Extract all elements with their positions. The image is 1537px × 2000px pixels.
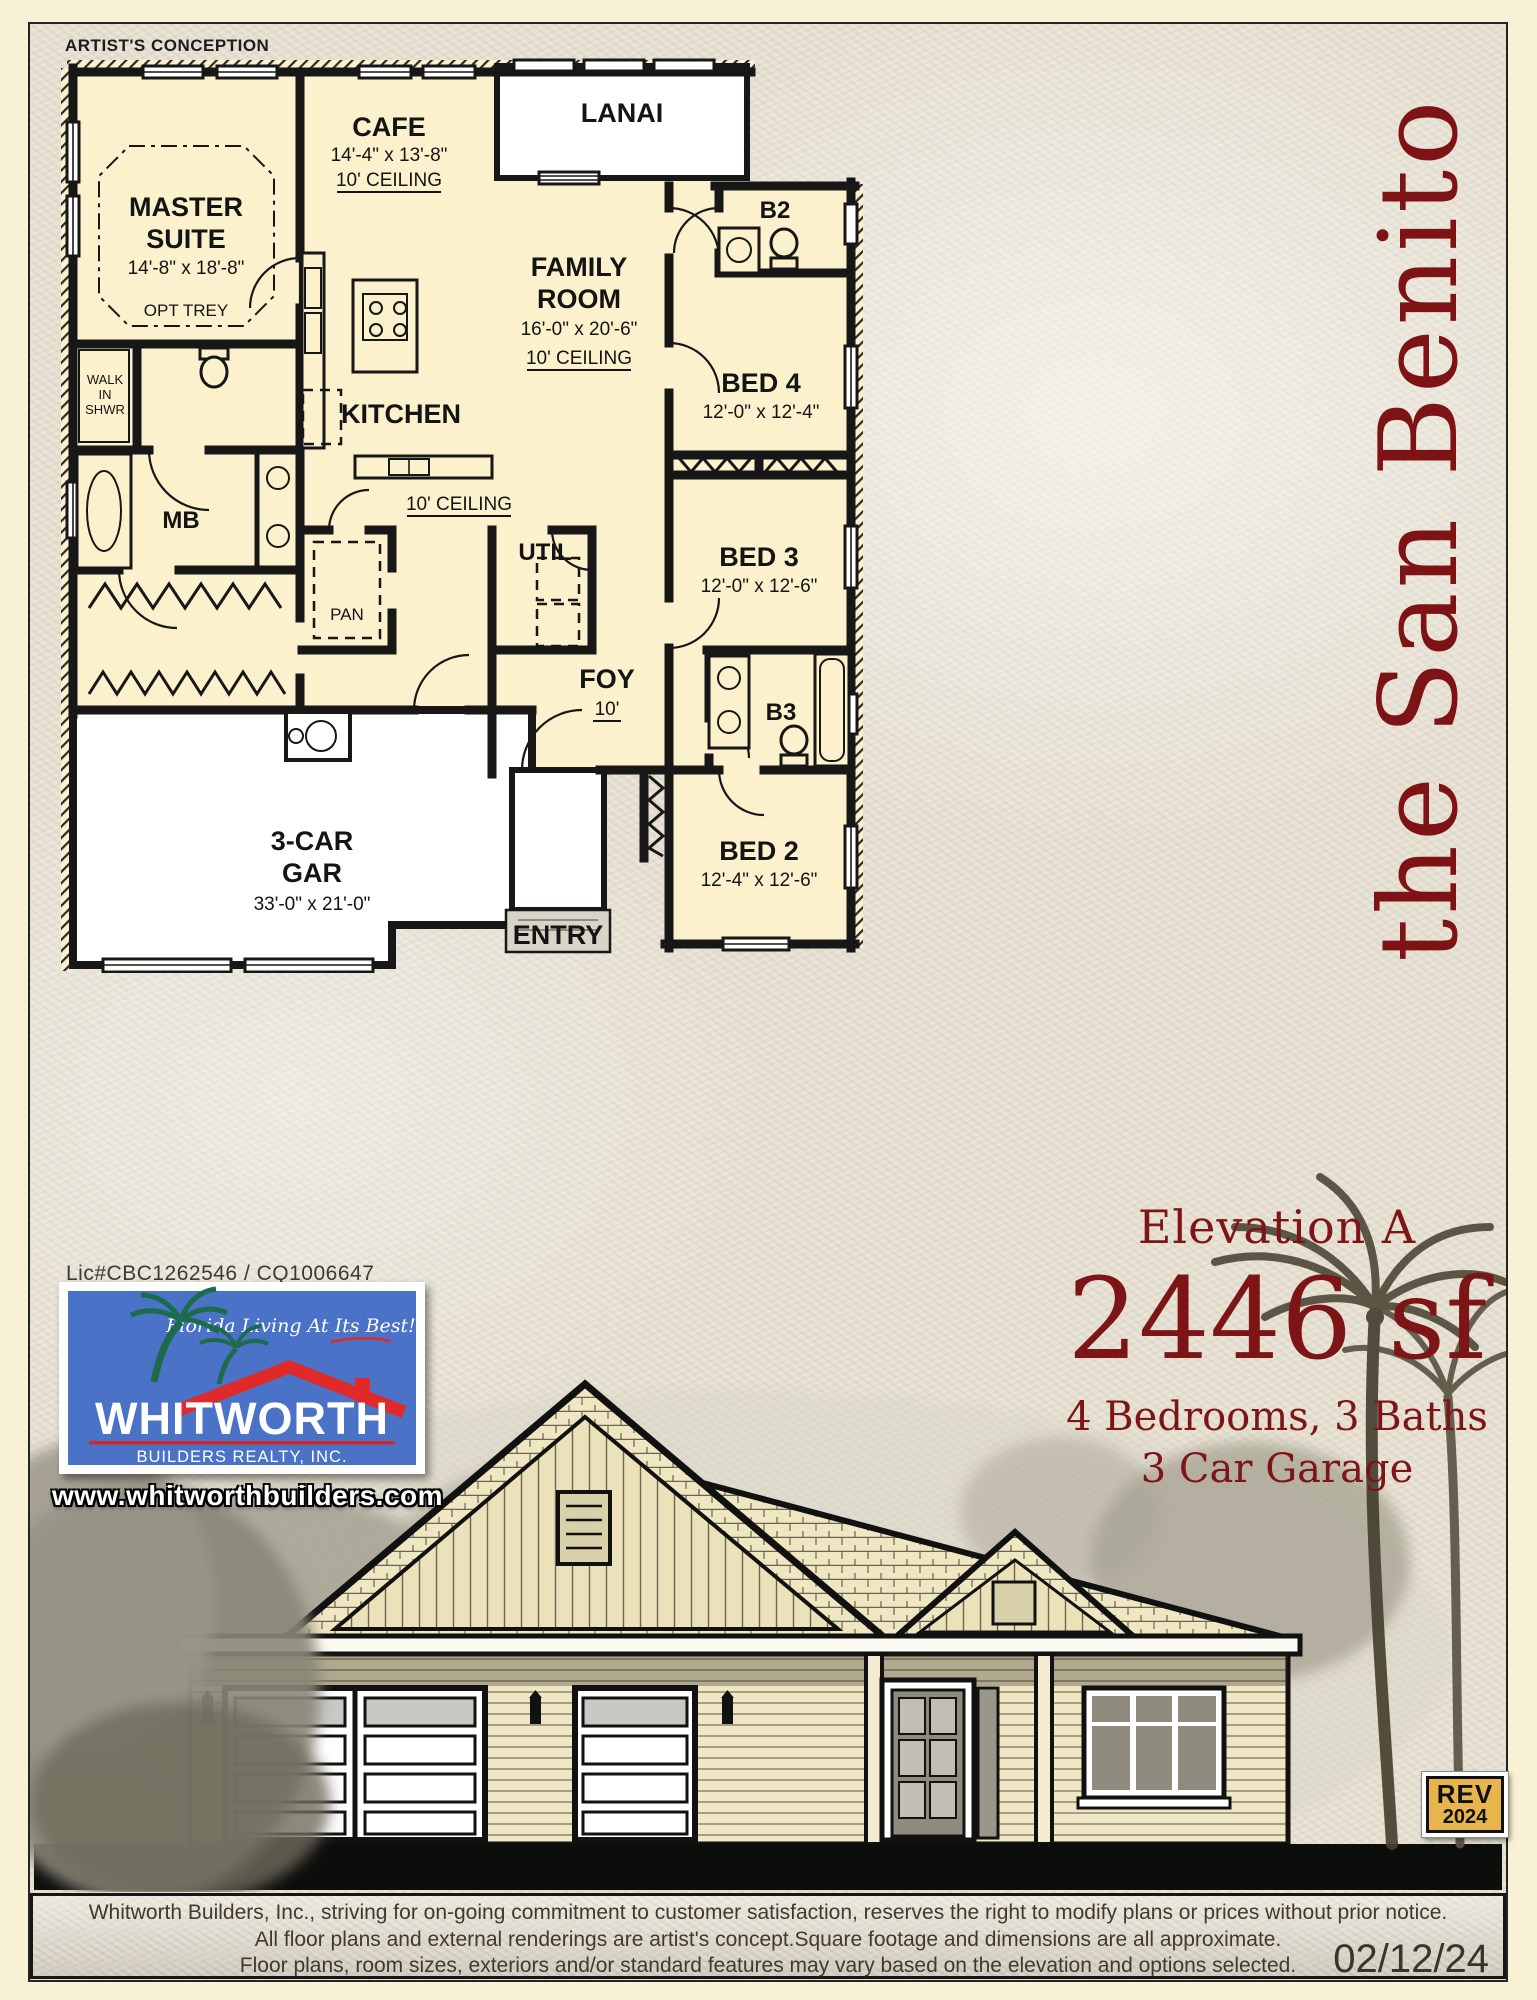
garage-count: 3 Car Garage [1042, 1446, 1512, 1492]
svg-text:IN: IN [99, 387, 112, 402]
entry-porch [512, 770, 604, 910]
room-label-pan: PAN [330, 605, 364, 624]
elevation-label: Elevation A [1042, 1200, 1512, 1254]
logo-company-sub: BUILDERS REALTY, INC. [136, 1448, 347, 1466]
bed-bath-count: 4 Bedrooms, 3 Baths [1042, 1394, 1512, 1440]
room-label-lanai: LANAI [581, 98, 664, 128]
artists-conception-label: ARTIST'S CONCEPTION [65, 36, 269, 56]
logo-company-name: WHITWORTH [95, 1393, 389, 1444]
elevation-info: Elevation A 2446 sf 4 Bedrooms, 3 Baths … [1042, 1200, 1512, 1492]
room-label-mb: MB [162, 507, 199, 534]
hall-ceiling-label: 10' CEILING [406, 494, 512, 515]
svg-text:12'-0" x 12'-6": 12'-0" x 12'-6" [701, 576, 818, 597]
room-label-bed2: BED 2 [719, 836, 799, 866]
disclaimer-line-1: Whitworth Builders, Inc., striving for o… [33, 1900, 1503, 1927]
room-label-cafe: CAFE [352, 112, 426, 142]
room-label-family: FAMILY [531, 252, 628, 282]
room-label-bed3: BED 3 [719, 542, 799, 572]
svg-text:14'-8" x 18'-8": 14'-8" x 18'-8" [128, 258, 245, 279]
svg-text:10' CEILING: 10' CEILING [526, 348, 632, 369]
opt-trey-label: OPT TREY [144, 301, 228, 320]
svg-text:10': 10' [595, 699, 620, 720]
room-label-bed4: BED 4 [721, 368, 801, 398]
front-window [1078, 1688, 1230, 1808]
room-label-entry: ENTRY [513, 920, 604, 950]
svg-text:12'-0" x 12'-4": 12'-0" x 12'-4" [703, 402, 820, 423]
svg-text:33'-0" x 21'-0": 33'-0" x 21'-0" [254, 894, 371, 915]
svg-text:SHWR: SHWR [85, 402, 125, 417]
room-label-kitchen: KITCHEN [341, 399, 461, 429]
model-name-vertical: the San Benito [1357, 32, 1497, 962]
room-label-walkin-shower: WALK [87, 372, 124, 387]
room-label-garage: 3-CAR [271, 826, 354, 856]
room-label-master: MASTER [129, 192, 243, 222]
svg-text:16'-0" x 20'-6": 16'-0" x 20'-6" [521, 319, 638, 340]
svg-text:ROOM: ROOM [537, 284, 621, 314]
room-label-b2: B2 [760, 197, 791, 224]
garage-door-single [575, 1688, 695, 1840]
svg-text:10' CEILING: 10' CEILING [336, 170, 442, 191]
logo-divider [89, 1441, 395, 1445]
svg-text:GAR: GAR [282, 858, 342, 888]
whitworth-logo: Florida Living At Its Best! [59, 1282, 425, 1474]
svg-text:12'-4" x 12'-6": 12'-4" x 12'-6" [701, 870, 818, 891]
svg-text:14'-4" x 13'-8": 14'-4" x 13'-8" [331, 145, 448, 166]
disclaimer-line-2: All floor plans and external renderings … [33, 1927, 1503, 1954]
room-label-foy: FOY [579, 664, 635, 694]
flyer-paper: ARTIST'S CONCEPTION [28, 22, 1508, 1982]
room-label-util: UTIL [518, 539, 571, 566]
disclaimer-line-3: Floor plans, room sizes, exteriors and/o… [33, 1953, 1503, 1980]
rev-badge-year: 2024 [1429, 1807, 1501, 1827]
floor-plan: MASTER SUITE 14'-8" x 18'-8" OPT TREY CA… [59, 58, 1059, 973]
rev-badge-label: REV [1429, 1781, 1501, 1807]
svg-text:SUITE: SUITE [146, 224, 226, 254]
room-label-b3: B3 [766, 699, 797, 726]
revision-date: 02/12/24 [1333, 1946, 1489, 1973]
website-url[interactable]: www.whitworthbuilders.com [52, 1480, 432, 1512]
footer-disclaimer: Whitworth Builders, Inc., striving for o… [30, 1893, 1506, 1979]
rev-badge: REV 2024 [1422, 1772, 1508, 1837]
square-footage: 2446 sf [1042, 1262, 1512, 1380]
